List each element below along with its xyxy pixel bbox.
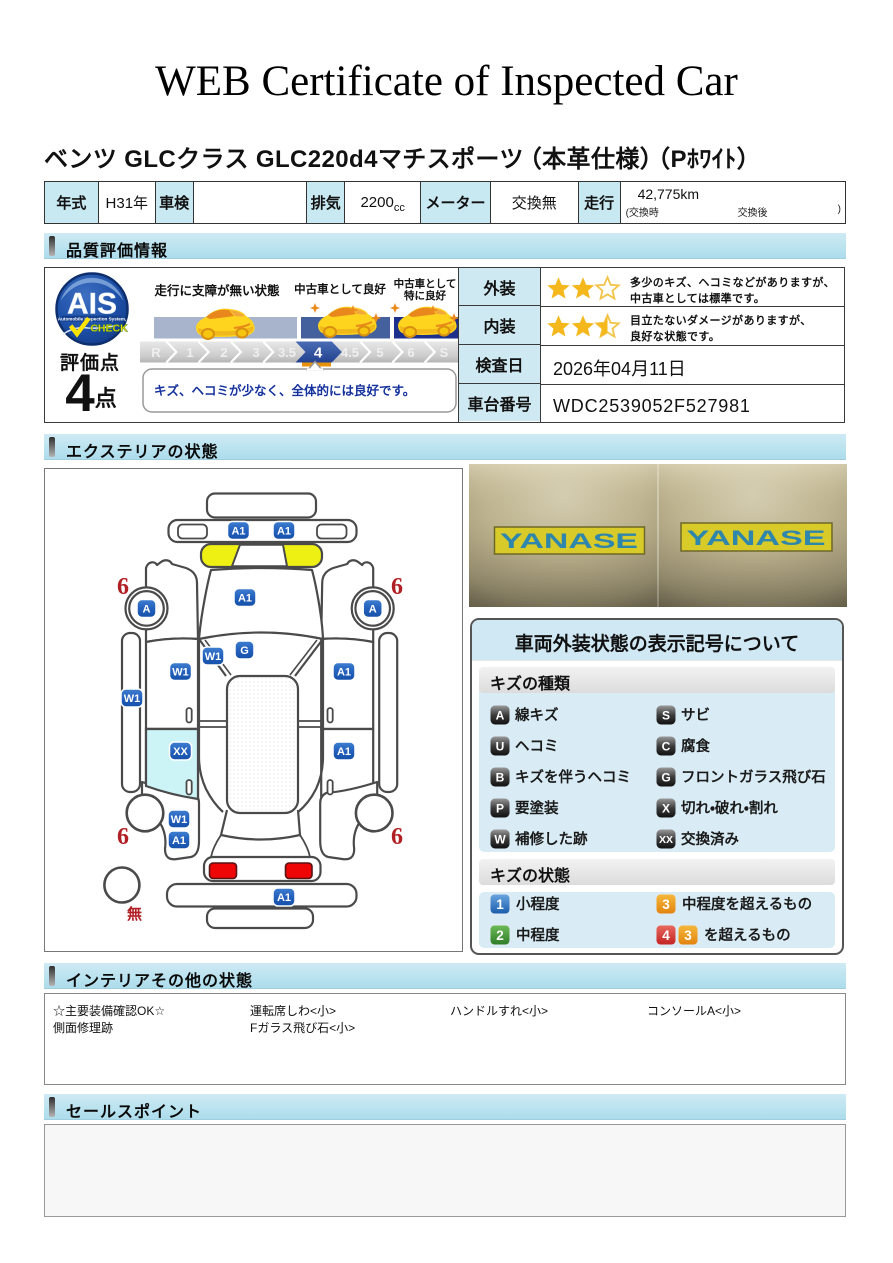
svg-text:キズ、ヘコミが少なく、全体的には良好です。: キズ、ヘコミが少なく、全体的には良好です。 xyxy=(154,383,415,398)
svg-text:U: U xyxy=(496,740,505,754)
svg-text:CHECK: CHECK xyxy=(90,323,128,335)
svg-text:切れ・破れ・割れ: 切れ・破れ・割れ xyxy=(681,799,778,817)
svg-text:W: W xyxy=(494,833,506,847)
svg-text:S: S xyxy=(662,709,670,723)
svg-text:3: 3 xyxy=(662,897,670,912)
svg-text:小程度: 小程度 xyxy=(516,895,560,913)
svg-text:2: 2 xyxy=(496,928,504,943)
svg-text:YANASE: YANASE xyxy=(500,529,638,553)
svg-text:要塗装: 要塗装 xyxy=(515,799,559,817)
svg-text:6: 6 xyxy=(407,345,414,360)
svg-text:4: 4 xyxy=(314,345,323,362)
svg-text:P: P xyxy=(496,802,504,816)
svg-text:交換済み: 交換済み xyxy=(681,830,739,848)
svg-text:XX: XX xyxy=(173,746,188,758)
svg-text:A1: A1 xyxy=(337,746,351,758)
svg-text:G: G xyxy=(661,771,670,785)
svg-text:サビ: サビ xyxy=(681,707,710,724)
svg-text:YANASE: YANASE xyxy=(687,526,826,550)
svg-text:1: 1 xyxy=(186,345,193,360)
svg-text:5: 5 xyxy=(376,345,383,360)
svg-text:W1: W1 xyxy=(172,667,189,679)
svg-text:3: 3 xyxy=(684,928,692,943)
svg-text:無: 無 xyxy=(127,905,142,923)
svg-text:A1: A1 xyxy=(172,835,186,847)
svg-text:A1: A1 xyxy=(277,526,291,538)
svg-text:A: A xyxy=(143,604,151,616)
svg-text:6: 6 xyxy=(391,574,403,600)
svg-text:A1: A1 xyxy=(238,593,252,605)
svg-text:W1: W1 xyxy=(124,693,141,705)
svg-text:補修した跡: 補修した跡 xyxy=(515,830,588,848)
svg-text:Automobile Inspection System,: Automobile Inspection System, xyxy=(58,317,126,322)
svg-text:フロントガラス飛び石: フロントガラス飛び石 xyxy=(681,769,826,786)
svg-text:キズを伴うヘコミ: キズを伴うヘコミ xyxy=(515,768,631,786)
svg-text:A: A xyxy=(496,709,505,723)
svg-text:R: R xyxy=(151,345,161,360)
svg-text:X: X xyxy=(662,802,670,816)
svg-text:XX: XX xyxy=(659,834,673,846)
svg-text:6: 6 xyxy=(391,824,403,850)
svg-text:腐食: 腐食 xyxy=(681,737,710,755)
svg-text:中程度: 中程度 xyxy=(516,926,560,944)
svg-text:6: 6 xyxy=(117,824,129,850)
svg-text:A1: A1 xyxy=(277,892,291,904)
svg-text:W1: W1 xyxy=(171,814,188,826)
svg-text:走行に支障が無い状態: 走行に支障が無い状態 xyxy=(154,283,280,298)
svg-text:S: S xyxy=(440,345,449,360)
svg-text:3.5: 3.5 xyxy=(278,345,296,360)
svg-text:中程度を超えるもの: 中程度を超えるもの xyxy=(682,895,812,913)
svg-text:1: 1 xyxy=(496,897,504,912)
svg-text:C: C xyxy=(662,740,671,754)
svg-text:線キズ: 線キズ xyxy=(514,706,559,724)
svg-text:A1: A1 xyxy=(337,667,351,679)
svg-text:4.5: 4.5 xyxy=(341,345,359,360)
svg-text:G: G xyxy=(240,645,249,657)
svg-text:W1: W1 xyxy=(205,651,222,663)
svg-text:中古車として: 中古車として xyxy=(394,277,457,290)
svg-text:ヘコミ: ヘコミ xyxy=(515,739,559,755)
svg-text:3: 3 xyxy=(252,345,259,360)
svg-text:4: 4 xyxy=(662,928,670,943)
svg-text:を超えるもの: を超えるもの xyxy=(704,926,791,944)
svg-text:中古車として良好: 中古車として良好 xyxy=(294,282,386,296)
svg-text:A: A xyxy=(369,604,377,616)
svg-text:A1: A1 xyxy=(231,526,245,538)
svg-text:2: 2 xyxy=(220,345,227,360)
svg-text:特に良好: 特に良好 xyxy=(404,289,446,302)
svg-text:B: B xyxy=(496,771,505,785)
svg-text:6: 6 xyxy=(117,574,129,600)
